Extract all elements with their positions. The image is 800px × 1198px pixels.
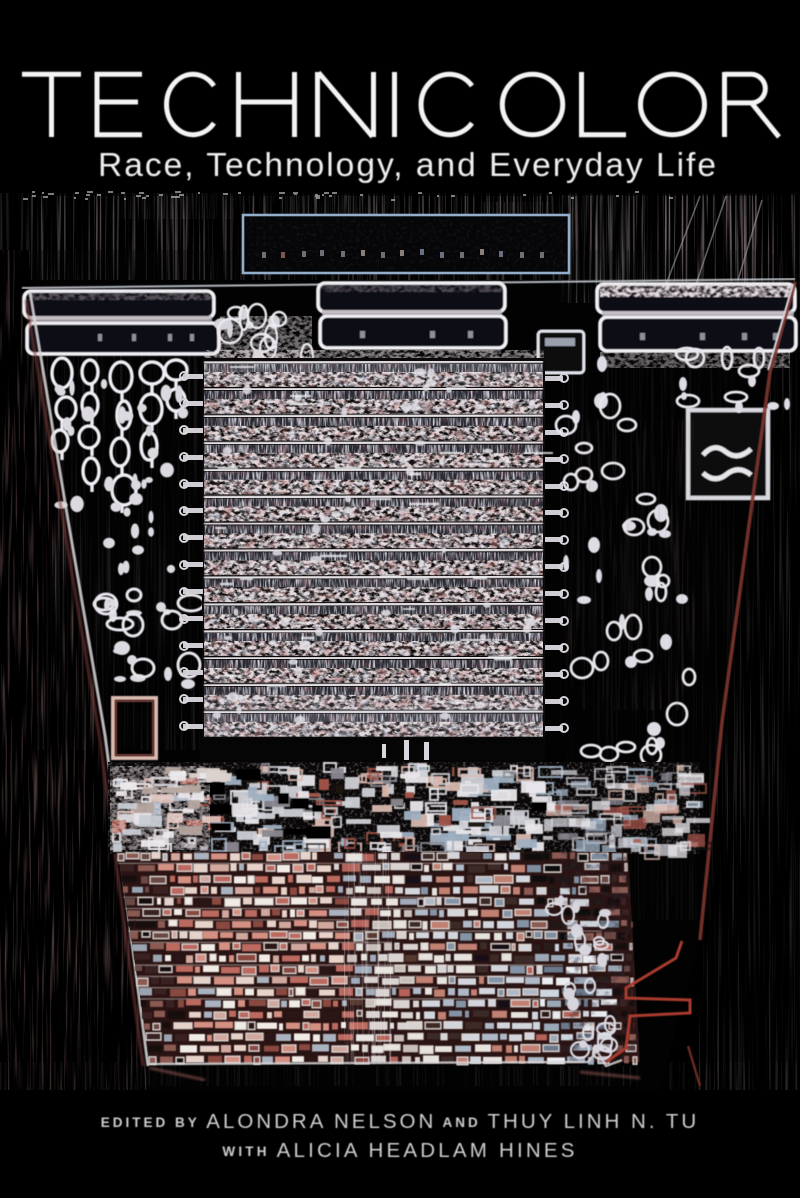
svg-text:WITH ALICIA HEADLAM HINES: WITH ALICIA HEADLAM HINES [222,1139,577,1162]
svg-text:Race, Technology, and Everyday: Race, Technology, and Everyday Life [98,147,718,184]
